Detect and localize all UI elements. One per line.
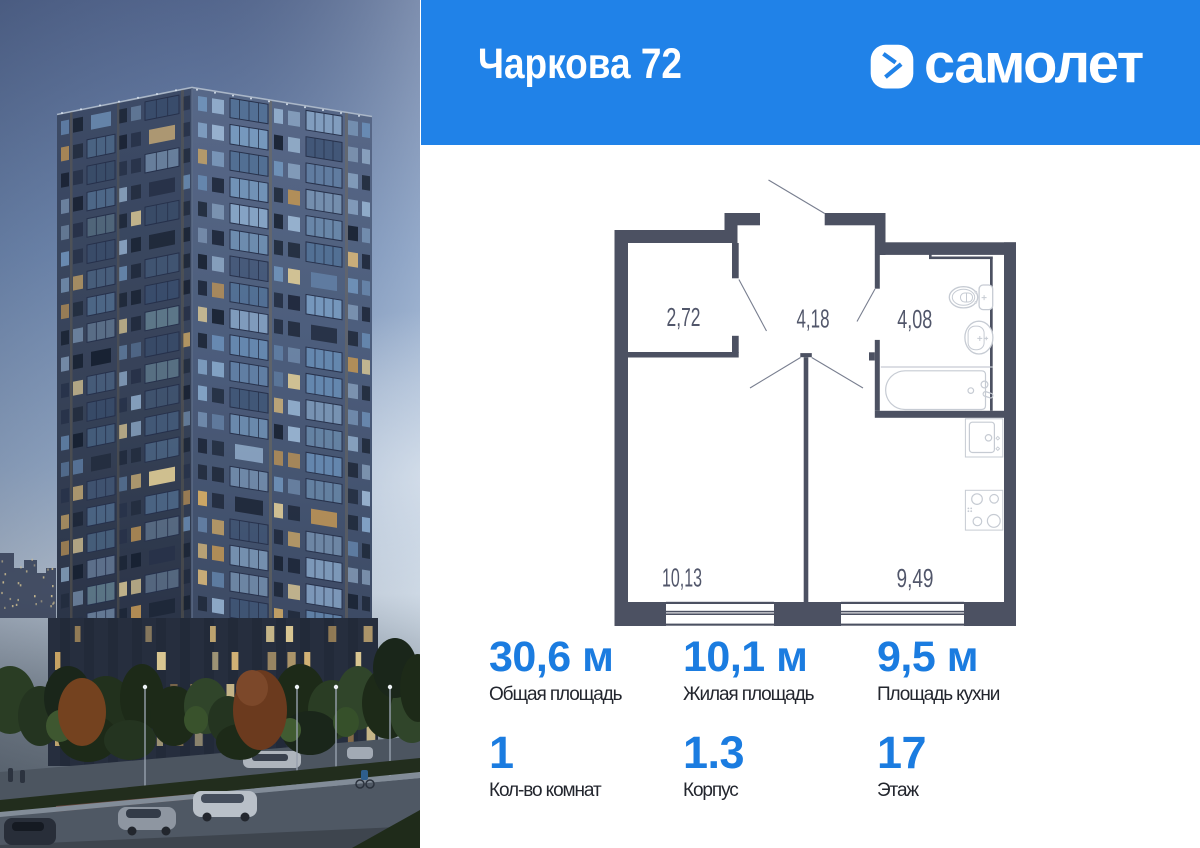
svg-text:9,49: 9,49	[897, 563, 934, 593]
svg-text:4,18: 4,18	[797, 304, 830, 334]
svg-text:10,13: 10,13	[662, 563, 702, 593]
svg-text:2,72: 2,72	[667, 302, 701, 332]
svg-text:4,08: 4,08	[897, 304, 932, 334]
svg-text:самолет: самолет	[924, 44, 1143, 95]
